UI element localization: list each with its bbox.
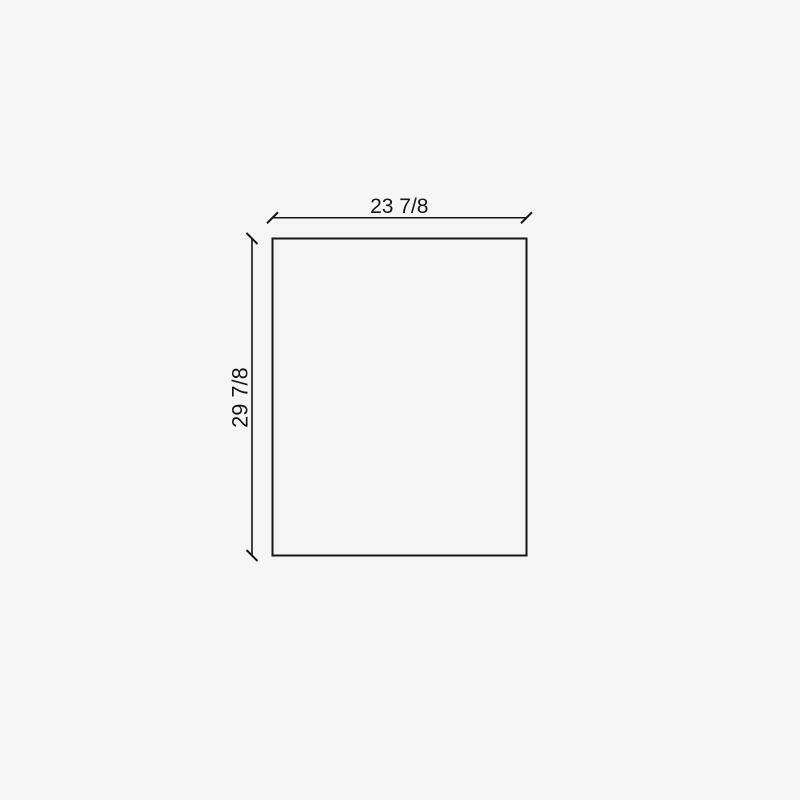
svg-text:29 7/8: 29 7/8 [227,367,252,428]
svg-text:23 7/8: 23 7/8 [370,195,428,218]
